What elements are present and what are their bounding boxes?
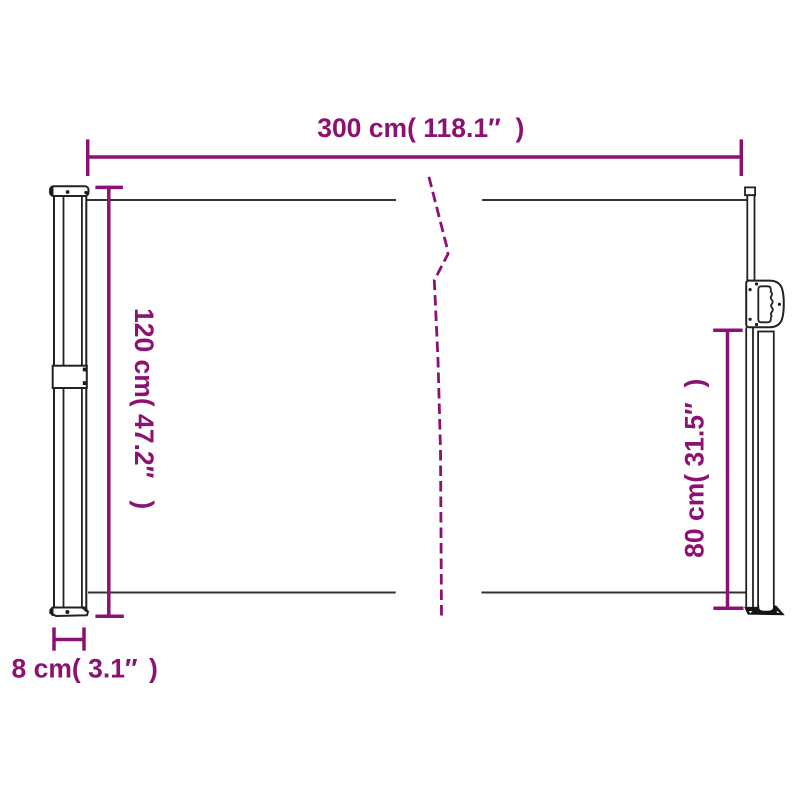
svg-text:8 cm( 3.1″ ): 8 cm( 3.1″ ): [12, 654, 158, 684]
svg-text:80 cm( 31.5″ ): 80 cm( 31.5″ ): [680, 379, 710, 558]
svg-text:120 cm( 47.2″ ): 120 cm( 47.2″ ): [129, 308, 159, 509]
svg-text:300 cm( 118.1″ ): 300 cm( 118.1″ ): [317, 113, 524, 143]
